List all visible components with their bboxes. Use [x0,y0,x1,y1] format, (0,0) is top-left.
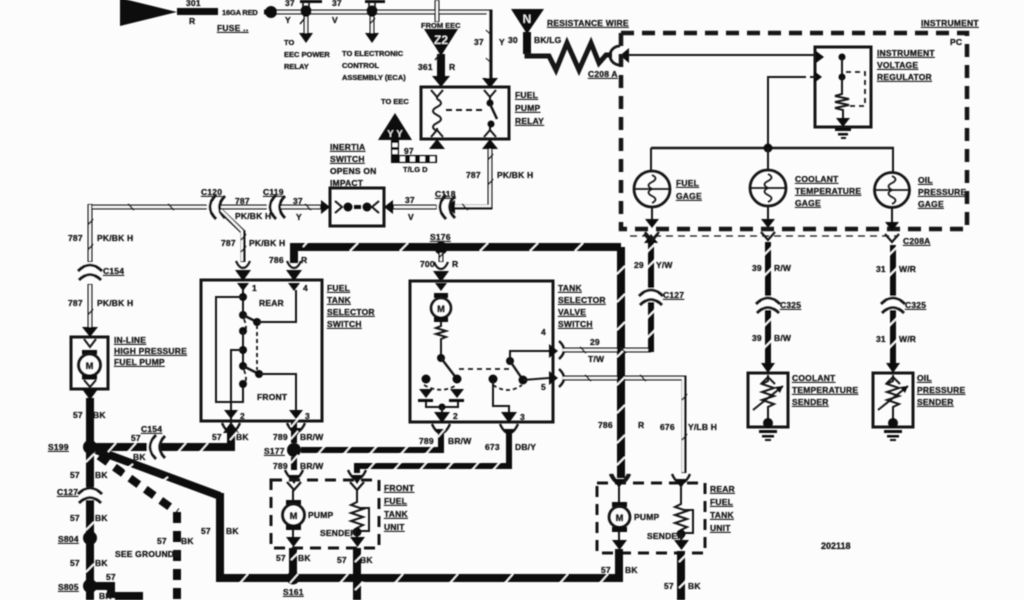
svg-text:FUSE ..: FUSE .. [217,23,248,33]
svg-text:VOLTAGE: VOLTAGE [877,60,918,70]
svg-text:PRESSURE: PRESSURE [918,187,966,197]
svg-text:FUEL: FUEL [515,90,538,100]
svg-text:37: 37 [332,0,342,8]
svg-text:C120: C120 [201,187,222,197]
svg-text:S804: S804 [58,534,79,544]
svg-text:V: V [332,15,338,25]
svg-text:57: 57 [212,432,222,442]
svg-text:PC: PC [950,37,962,47]
svg-text:VALVE: VALVE [558,307,586,317]
svg-text:W/R: W/R [899,264,916,274]
svg-text:R: R [301,255,307,265]
svg-text:BK: BK [625,565,638,575]
svg-text:R/W: R/W [774,263,792,273]
svg-text:786: 786 [269,255,284,265]
svg-text:C127: C127 [663,290,684,300]
svg-text:57: 57 [276,553,286,563]
svg-text:787: 787 [221,238,236,248]
svg-text:16GA RED: 16GA RED [222,8,258,17]
svg-text:700: 700 [420,259,435,269]
svg-text:TO: TO [284,38,294,47]
svg-text:IN-LINE: IN-LINE [114,335,146,345]
svg-text:INSTRUMENT: INSTRUMENT [921,18,979,28]
svg-text:CONTROL: CONTROL [342,61,379,70]
svg-text:PRESSURE: PRESSURE [917,385,965,395]
svg-text:SENDER: SENDER [917,397,954,407]
svg-text:TANK: TANK [558,283,582,293]
svg-text:57: 57 [201,526,211,536]
svg-text:202118: 202118 [821,541,851,551]
svg-text:ASSEMBLY (ECA): ASSEMBLY (ECA) [342,73,406,82]
svg-text:SWITCH: SWITCH [558,319,593,329]
svg-text:Y: Y [285,15,291,25]
svg-text:T/LG D: T/LG D [403,165,428,174]
svg-text:39: 39 [752,263,762,273]
svg-text:Z2: Z2 [434,33,448,47]
svg-text:BK: BK [688,581,701,591]
svg-text:COOLANT: COOLANT [792,373,836,383]
svg-text:301: 301 [186,0,201,8]
svg-text:787: 787 [466,170,481,180]
svg-text:57: 57 [601,565,611,575]
svg-text:UNIT: UNIT [384,522,405,532]
svg-text:DB/Y: DB/Y [515,442,536,452]
svg-text:T/W: T/W [588,354,605,364]
svg-text:REAR: REAR [259,298,284,308]
svg-text:COOLANT: COOLANT [795,174,839,184]
svg-text:PUMP: PUMP [515,103,540,113]
svg-text:FRONT: FRONT [257,392,288,402]
svg-text:789: 789 [419,436,434,446]
svg-text:M: M [437,304,445,314]
svg-text:787: 787 [235,196,250,206]
svg-text:TEMPERATURE: TEMPERATURE [792,385,858,395]
svg-text:S177: S177 [264,446,285,456]
svg-text:31: 31 [876,334,886,344]
svg-text:PK/BK H: PK/BK H [249,238,285,248]
svg-text:C119: C119 [263,187,284,197]
svg-text:BK: BK [95,513,108,523]
svg-text:37: 37 [405,195,415,205]
svg-text:PK/BK H: PK/BK H [97,298,133,308]
svg-text:SELECTOR: SELECTOR [558,295,606,305]
svg-text:V: V [408,212,414,222]
svg-text:57: 57 [106,572,116,582]
svg-text:BK: BK [236,432,249,442]
svg-text:BR/W: BR/W [300,461,324,471]
svg-text:39: 39 [752,333,762,343]
svg-text:37: 37 [474,37,484,47]
svg-text:57: 57 [157,536,167,546]
svg-text:BK: BK [360,555,373,565]
svg-text:1: 1 [252,283,257,293]
svg-text:BK: BK [93,410,106,420]
svg-text:R: R [638,420,644,430]
svg-text:M: M [616,513,624,523]
svg-text:TO EEC: TO EEC [381,97,409,106]
svg-text:Y/W: Y/W [656,260,673,270]
svg-text:BK: BK [99,591,112,600]
svg-text:787: 787 [68,233,83,243]
svg-text:C325: C325 [780,300,801,310]
svg-text:786: 786 [598,420,613,430]
svg-text:C325: C325 [905,300,926,310]
svg-text:5: 5 [541,382,546,392]
svg-text:W/R: W/R [899,334,916,344]
svg-text:SWITCH: SWITCH [327,319,362,329]
svg-text:RESISTANCE WIRE: RESISTANCE WIRE [547,18,629,28]
svg-text:FUEL PUMP: FUEL PUMP [114,357,165,367]
svg-text:787: 787 [68,298,83,308]
svg-text:INSTRUMENT: INSTRUMENT [877,48,935,58]
svg-text:BK: BK [298,553,311,563]
svg-text:BK: BK [181,536,194,546]
svg-text:B/W: B/W [774,333,792,343]
svg-text:SENDER: SENDER [647,531,684,541]
svg-text:N: N [523,12,532,26]
svg-text:TEMPERATURE: TEMPERATURE [795,186,861,196]
svg-text:57: 57 [70,513,80,523]
svg-text:M: M [86,361,94,371]
svg-text:TO ELECTRONIC: TO ELECTRONIC [342,49,404,58]
svg-text:S161: S161 [283,587,304,597]
svg-text:Y Y: Y Y [387,129,403,140]
svg-text:2: 2 [453,411,458,421]
svg-text:FUEL: FUEL [676,178,699,188]
svg-text:S199: S199 [48,442,69,452]
svg-text:GAGE: GAGE [918,199,944,209]
svg-text:57: 57 [337,555,347,565]
svg-text:PK/BK H: PK/BK H [97,233,133,243]
svg-text:SEE GROUNDS: SEE GROUNDS [115,549,180,559]
svg-text:3: 3 [520,412,525,422]
svg-text:R: R [452,259,458,269]
svg-text:Y/LB H: Y/LB H [688,422,717,432]
svg-text:SWITCH: SWITCH [330,154,365,164]
svg-text:SENDER: SENDER [320,528,357,538]
svg-text:BR/W: BR/W [448,436,472,446]
svg-text:C208A: C208A [903,236,930,246]
svg-text:4: 4 [541,327,546,337]
svg-text:BR/W: BR/W [300,432,324,442]
svg-text:S805: S805 [58,582,79,592]
svg-text:INERTIA: INERTIA [330,142,365,152]
svg-text:57: 57 [73,410,83,420]
svg-text:FROM EEC: FROM EEC [421,21,461,30]
svg-text:RELAY: RELAY [515,116,544,126]
svg-text:PUMP: PUMP [308,510,333,520]
svg-text:R: R [189,16,195,26]
svg-text:PUMP: PUMP [634,512,659,522]
svg-text:TANK: TANK [710,510,734,520]
svg-text:GAGE: GAGE [676,191,702,201]
svg-text:37: 37 [285,0,295,8]
svg-text:FRONT: FRONT [384,483,415,493]
svg-text:REGULATOR: REGULATOR [877,72,932,82]
svg-text:361: 361 [418,62,433,72]
svg-text:PK/BK H: PK/BK H [497,170,533,180]
svg-text:29: 29 [634,260,644,270]
svg-text:676: 676 [660,422,675,432]
svg-text:C127: C127 [57,487,78,497]
svg-text:Y: Y [296,212,302,222]
svg-text:BK: BK [95,470,108,480]
svg-text:TANK: TANK [327,295,351,305]
svg-text:GAGE: GAGE [795,198,821,208]
svg-text:FUEL: FUEL [384,496,407,506]
svg-text:57: 57 [664,581,674,591]
svg-text:789: 789 [273,461,288,471]
svg-text:EEC POWER: EEC POWER [284,50,330,59]
svg-text:FUEL: FUEL [327,283,350,293]
svg-text:OIL: OIL [918,175,933,185]
svg-text:29: 29 [590,337,600,347]
svg-text:2: 2 [240,411,245,421]
svg-text:Y: Y [499,37,505,47]
svg-text:97: 97 [404,146,414,156]
svg-text:UNIT: UNIT [710,523,731,533]
svg-text:57: 57 [70,558,80,568]
svg-text:789: 789 [273,432,288,442]
svg-text:4: 4 [303,283,308,293]
svg-text:RELAY: RELAY [284,62,309,71]
svg-text:BK: BK [226,526,239,536]
svg-text:37: 37 [293,196,303,206]
svg-text:OIL: OIL [917,373,932,383]
svg-text:57: 57 [70,470,80,480]
svg-text:673: 673 [485,442,500,452]
svg-text:BK: BK [95,558,108,568]
svg-text:HIGH PRESSURE: HIGH PRESSURE [114,346,187,356]
svg-text:30: 30 [508,35,518,45]
svg-text:C208 A: C208 A [588,69,618,79]
svg-text:S176: S176 [430,232,451,242]
svg-text:PK/BK H: PK/BK H [235,211,271,221]
svg-text:TANK: TANK [384,509,408,519]
svg-text:31: 31 [876,264,886,274]
svg-text:57: 57 [131,433,141,443]
svg-text:C154: C154 [141,424,162,434]
svg-text:OPENS ON: OPENS ON [330,166,376,176]
svg-text:SENDER: SENDER [792,397,829,407]
svg-text:FUEL: FUEL [710,497,733,507]
svg-text:R: R [449,62,455,72]
svg-text:SELECTOR: SELECTOR [327,307,375,317]
svg-text:C154: C154 [103,266,124,276]
svg-text:3: 3 [305,411,310,421]
svg-text:M: M [290,511,298,521]
svg-text:REAR: REAR [710,484,735,494]
svg-text:BK/LG: BK/LG [534,35,562,45]
